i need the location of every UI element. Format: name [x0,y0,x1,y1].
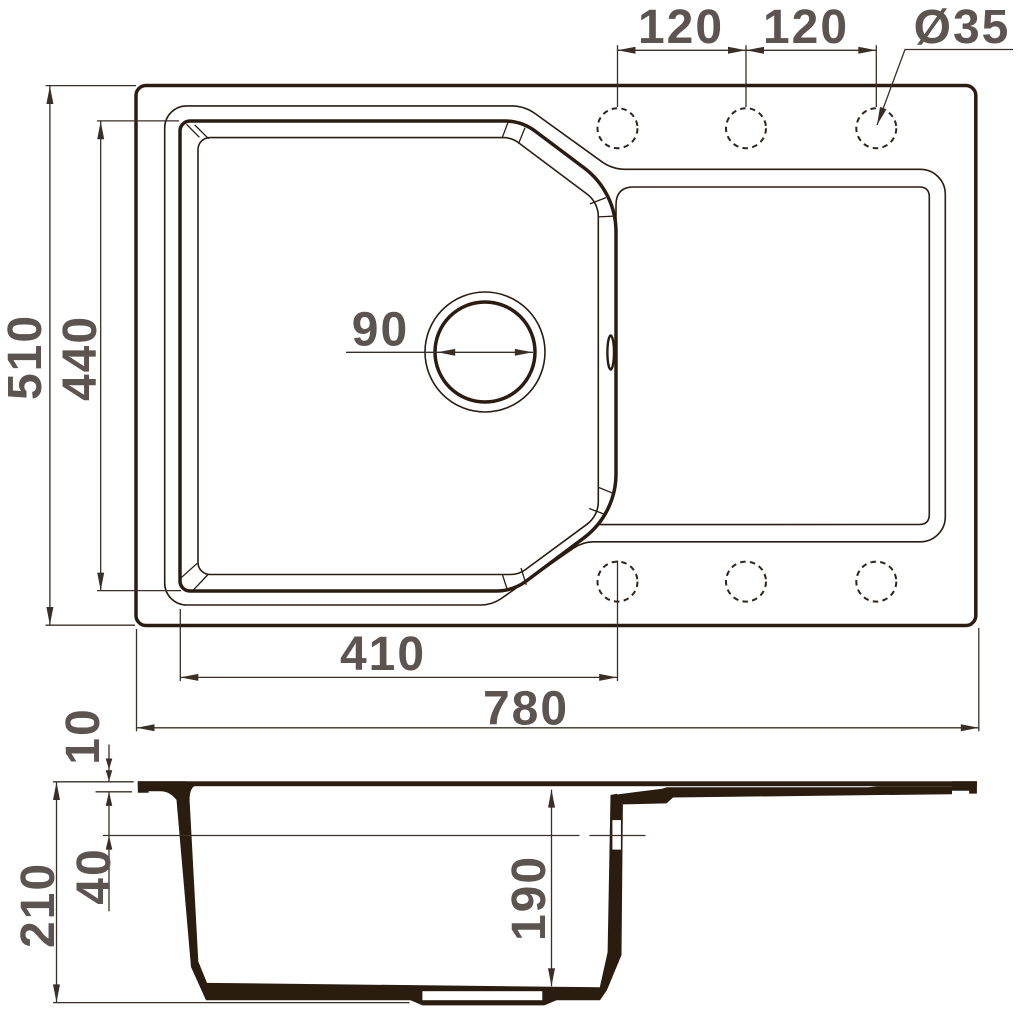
svg-text:410: 410 [340,628,426,681]
svg-text:10: 10 [57,707,110,764]
svg-text:780: 780 [483,683,569,736]
svg-text:120: 120 [638,1,724,54]
svg-text:440: 440 [54,315,107,401]
svg-text:510: 510 [0,314,52,400]
svg-text:190: 190 [503,855,556,941]
svg-text:90: 90 [352,304,409,357]
svg-text:Ø35: Ø35 [914,1,1011,54]
svg-text:40: 40 [68,847,121,904]
svg-text:210: 210 [12,862,65,948]
svg-text:120: 120 [763,1,849,54]
